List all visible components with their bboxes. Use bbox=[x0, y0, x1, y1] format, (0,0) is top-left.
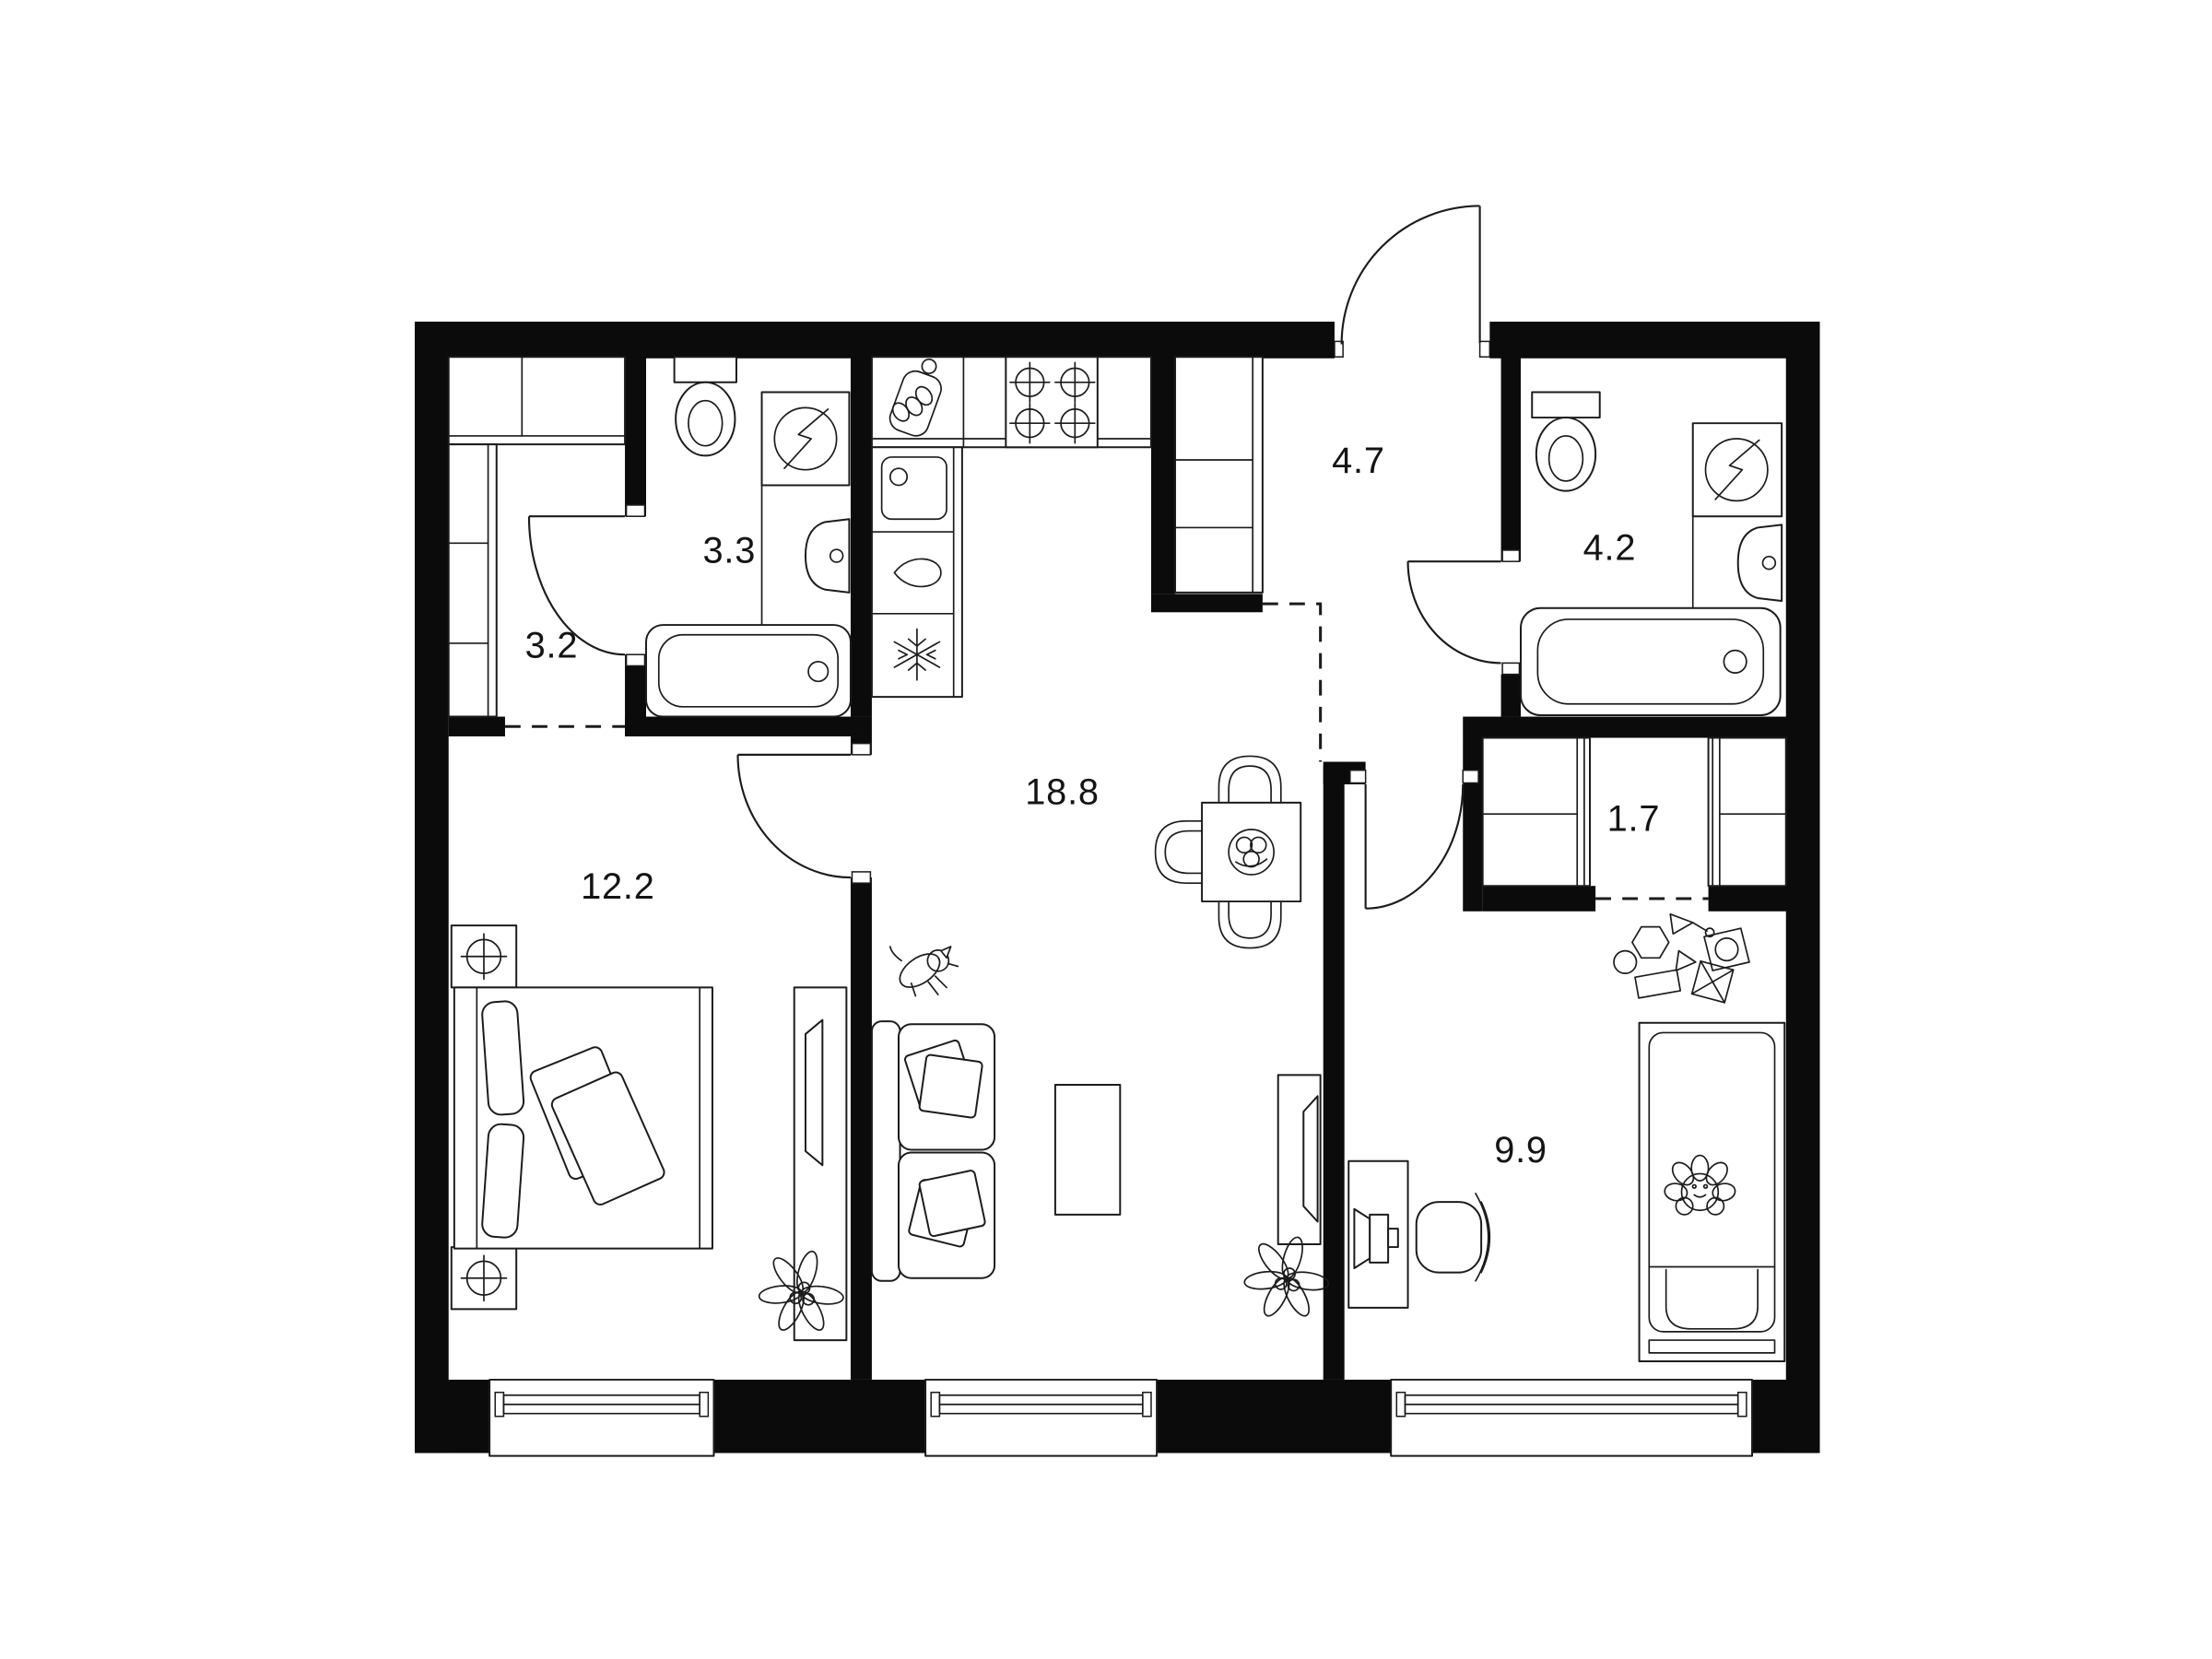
toilet-icon bbox=[1532, 393, 1599, 491]
double-bed-icon bbox=[454, 987, 712, 1248]
bathtub-icon bbox=[646, 625, 851, 716]
bedroom-door-swing-icon bbox=[738, 744, 871, 884]
tv-stand-icon bbox=[1278, 1075, 1321, 1244]
bathtub-icon bbox=[1521, 608, 1781, 715]
tv-stand-icon bbox=[794, 987, 847, 1340]
room-label-entrance-hall: 4.7 bbox=[1332, 441, 1385, 481]
toilet-icon bbox=[675, 357, 736, 455]
dining-table-icon bbox=[1156, 756, 1301, 947]
child-bed-icon bbox=[1640, 1023, 1785, 1361]
washing-machine-icon bbox=[762, 393, 850, 486]
nightstand-icon bbox=[452, 1247, 516, 1309]
stove-icon bbox=[1006, 357, 1097, 447]
office-chair-icon bbox=[1417, 1194, 1490, 1281]
desk-icon bbox=[1348, 1161, 1407, 1308]
tv-icon bbox=[1303, 1096, 1317, 1221]
living-room-furniture bbox=[872, 756, 1330, 1319]
wall-sink-icon bbox=[1738, 524, 1782, 601]
room-label-bedroom: 12.2 bbox=[581, 866, 655, 907]
wall-sink-icon bbox=[806, 519, 849, 593]
bedroom-furniture bbox=[452, 925, 847, 1340]
bathroom-door-swing-icon bbox=[1408, 550, 1520, 675]
bedroom-window-icon bbox=[489, 1380, 713, 1456]
washing-machine-icon bbox=[1693, 423, 1782, 516]
sofa-icon bbox=[872, 1021, 994, 1281]
bathroom-fixtures bbox=[1521, 393, 1782, 716]
room-label-bathroom: 4.2 bbox=[1583, 528, 1637, 569]
tv-icon bbox=[806, 1020, 822, 1166]
windows bbox=[489, 1380, 1752, 1456]
room-label-storage: 1.7 bbox=[1607, 799, 1661, 840]
plant-icon bbox=[1243, 1235, 1329, 1320]
entrance-door-swing-icon bbox=[1335, 206, 1489, 357]
child-room-window-icon bbox=[1391, 1380, 1752, 1456]
room-label-hallway-small: 3.2 bbox=[525, 625, 579, 665]
nightstand-icon bbox=[452, 925, 516, 987]
child-room-furniture bbox=[1348, 914, 1784, 1361]
living-room-window-icon bbox=[925, 1380, 1157, 1456]
child-room-door-swing-icon bbox=[1350, 771, 1478, 909]
doors bbox=[529, 206, 1519, 908]
room-label-bathroom-small: 3.3 bbox=[703, 531, 757, 571]
floor-plan-page: 3.2 3.3 4.7 4.2 18.8 12.2 1.7 9.9 bbox=[0, 0, 2212, 1659]
room-label-kitchen-living: 18.8 bbox=[1025, 771, 1100, 812]
kitchen-fixtures bbox=[872, 352, 1151, 697]
entrance-wardrobe-icon bbox=[1175, 357, 1263, 593]
floor-plan-canvas: 3.2 3.3 4.7 4.2 18.8 12.2 1.7 9.9 bbox=[0, 0, 2212, 1659]
toy-blocks-icon bbox=[1614, 914, 1749, 1003]
dog-icon bbox=[890, 947, 958, 996]
coffee-table-icon bbox=[1055, 1085, 1120, 1215]
room-label-child-room: 9.9 bbox=[1494, 1130, 1547, 1171]
